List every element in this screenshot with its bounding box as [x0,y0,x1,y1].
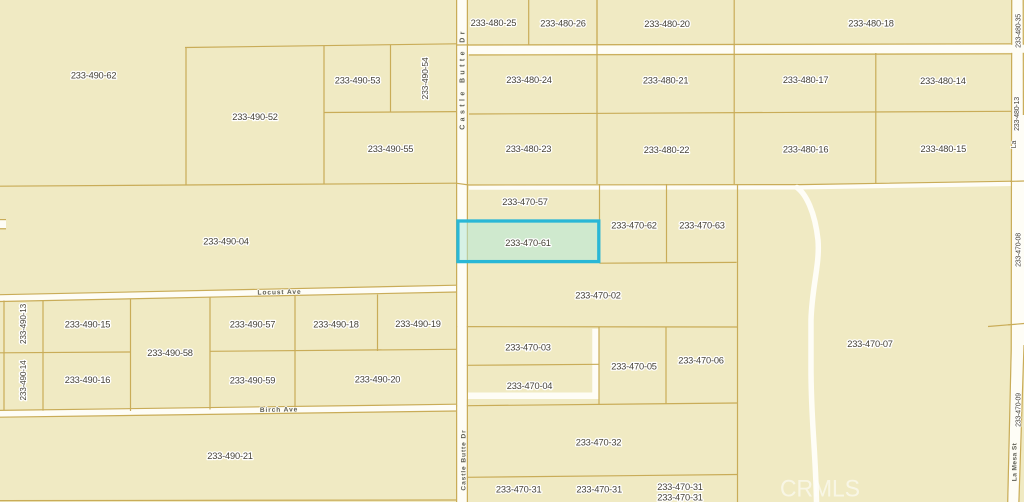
svg-text:233-490-55: 233-490-55 [368,144,414,154]
svg-text:233-490-53: 233-490-53 [335,75,381,85]
svg-text:233-490-59: 233-490-59 [230,375,276,385]
svg-text:233-480-13: 233-480-13 [1014,97,1021,131]
svg-text:233-480-24: 233-480-24 [506,75,552,85]
svg-text:233-490-21: 233-490-21 [207,451,253,461]
svg-text:233-470-62: 233-470-62 [611,221,657,231]
svg-text:233-490-16: 233-490-16 [65,375,111,385]
svg-text:233-470-31: 233-470-31 [576,485,622,495]
svg-text:233-480-20: 233-480-20 [644,19,690,29]
svg-text:233-470-31: 233-470-31 [657,482,703,492]
svg-text:233-490-19: 233-490-19 [395,319,441,329]
svg-text:233-490-52: 233-490-52 [232,112,278,122]
svg-text:233-480-14: 233-480-14 [920,76,966,86]
svg-text:233-470-32: 233-470-32 [576,437,622,447]
svg-text:233-480-17: 233-480-17 [783,75,829,85]
svg-text:233-470-31: 233-470-31 [657,493,703,502]
svg-text:233-490-57: 233-490-57 [230,319,276,329]
svg-text:233-490-54: 233-490-54 [420,57,430,99]
svg-text:233-480-35: 233-480-35 [1016,14,1023,48]
svg-text:233-480-15: 233-480-15 [921,144,967,154]
svg-text:La Mesa St: La Mesa St [1012,442,1019,481]
svg-text:233-470-08: 233-470-08 [1016,233,1023,267]
svg-text:233-490-20: 233-490-20 [355,374,401,384]
svg-text:233-470-05: 233-470-05 [611,361,657,371]
svg-text:CRMLS: CRMLS [780,476,860,502]
svg-text:233-490-15: 233-490-15 [65,319,111,329]
svg-text:233-480-25: 233-480-25 [471,18,517,28]
svg-text:Birch Ave: Birch Ave [260,406,299,414]
svg-text:233-480-22: 233-480-22 [644,145,690,155]
svg-text:233-470-61: 233-470-61 [505,238,551,248]
svg-text:233-490-04: 233-490-04 [203,236,249,246]
svg-text:233-470-02: 233-470-02 [575,290,621,300]
svg-text:233-470-09: 233-470-09 [1016,393,1023,427]
svg-text:233-490-14: 233-490-14 [19,360,28,401]
svg-text:233-470-04: 233-470-04 [507,381,553,391]
svg-text:233-470-03: 233-470-03 [505,342,551,352]
svg-text:233-480-18: 233-480-18 [848,18,894,28]
svg-text:233-470-31: 233-470-31 [496,485,542,495]
svg-text:233-480-23: 233-480-23 [506,144,552,154]
svg-text:233-470-07: 233-470-07 [847,339,893,349]
svg-text:233-470-57: 233-470-57 [502,197,548,207]
svg-text:233-490-13: 233-490-13 [19,303,28,344]
svg-text:Castle Butte Dr: Castle Butte Dr [461,429,468,490]
svg-text:233-470-06: 233-470-06 [678,355,724,365]
svg-text:233-480-16: 233-480-16 [783,145,829,155]
svg-text:La: La [1011,141,1018,149]
svg-text:233-490-18: 233-490-18 [313,319,359,329]
svg-text:Castle Butte Dr: Castle Butte Dr [460,28,467,130]
svg-text:Locust Ave: Locust Ave [257,289,301,297]
svg-text:233-480-26: 233-480-26 [540,18,586,28]
svg-text:233-480-21: 233-480-21 [643,76,689,86]
svg-text:233-470-63: 233-470-63 [679,221,725,231]
svg-text:233-490-62: 233-490-62 [71,71,117,81]
svg-text:233-490-58: 233-490-58 [147,348,193,358]
